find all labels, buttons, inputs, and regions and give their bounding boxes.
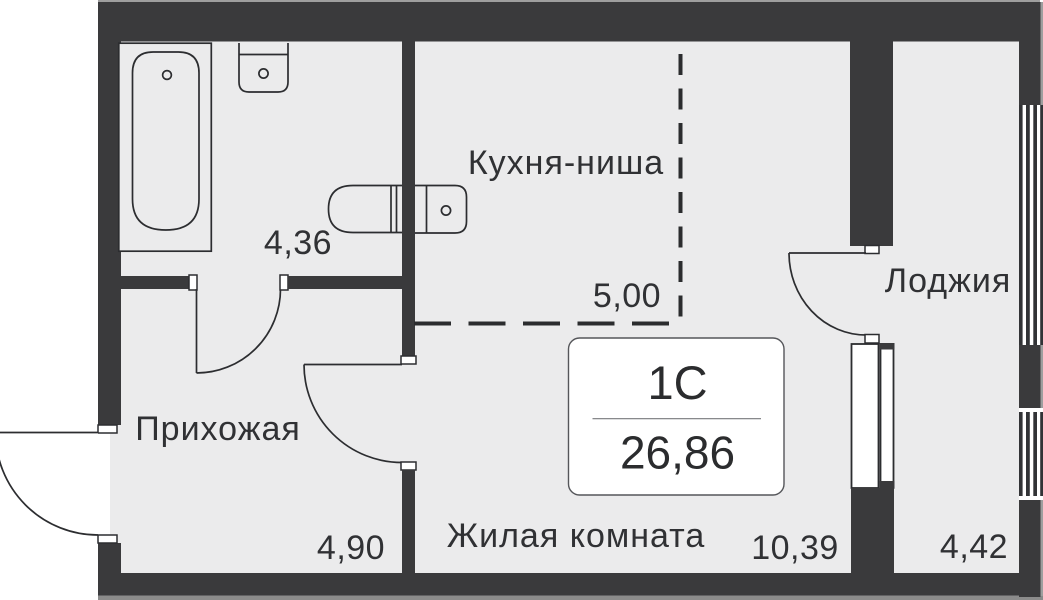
svg-text:10,39: 10,39 [751,529,839,567]
svg-text:Лоджия: Лоджия [885,262,1011,300]
svg-text:Прихожая: Прихожая [135,410,301,448]
svg-text:4,42: 4,42 [940,528,1008,566]
svg-text:5,00: 5,00 [593,277,661,315]
svg-text:1С: 1С [647,356,707,409]
svg-text:Жилая комната: Жилая комната [447,517,706,555]
svg-text:4,36: 4,36 [264,224,332,262]
svg-text:Кухня-ниша: Кухня-ниша [468,144,664,182]
svg-text:4,90: 4,90 [317,529,385,567]
svg-text:26,86: 26,86 [620,427,735,479]
